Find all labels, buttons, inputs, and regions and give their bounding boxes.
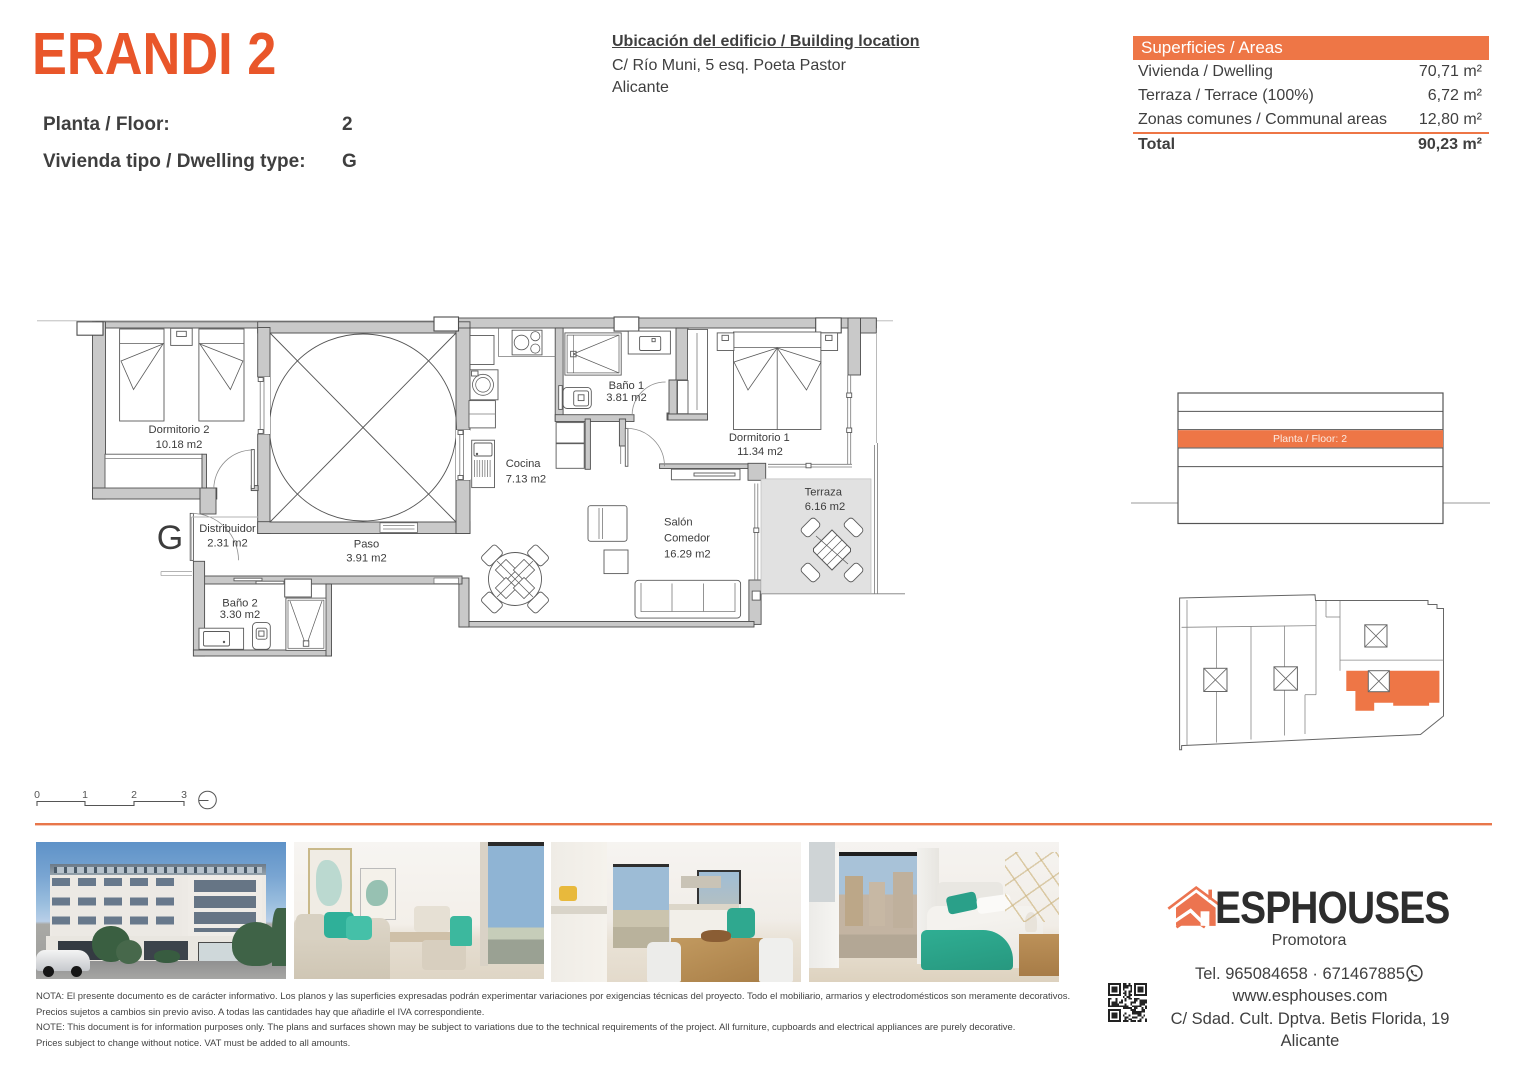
svg-text:Planta / Floor: 2: Planta / Floor: 2 — [1273, 433, 1347, 445]
svg-text:3: 3 — [181, 789, 187, 801]
svg-text:1: 1 — [82, 789, 88, 801]
svg-text:0: 0 — [34, 789, 40, 801]
svg-text:2: 2 — [131, 789, 137, 801]
